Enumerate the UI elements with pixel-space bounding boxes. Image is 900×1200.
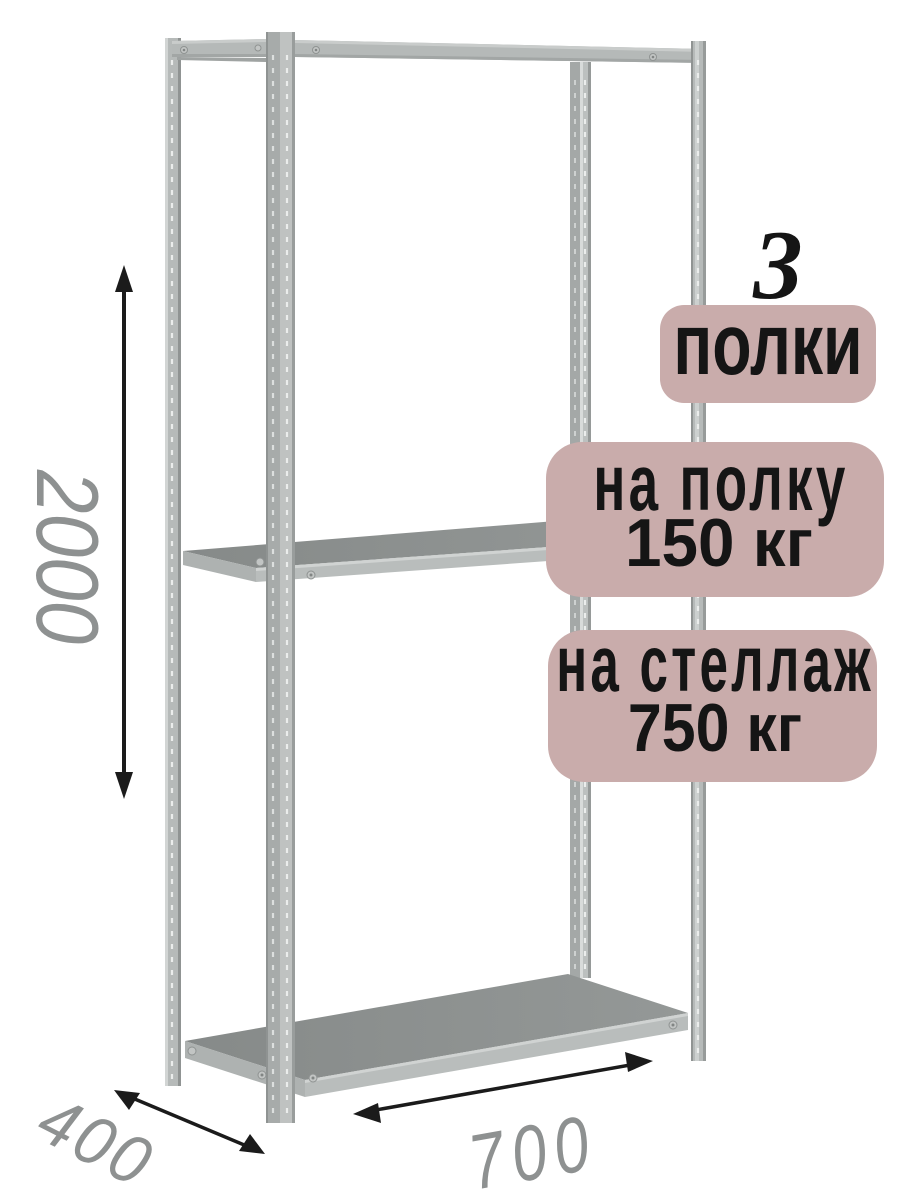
svg-text:150 кг: 150 кг [625, 506, 813, 581]
svg-text:750 кг: 750 кг [628, 690, 802, 766]
svg-text:2000: 2000 [18, 469, 116, 644]
svg-text:полки: полки [673, 297, 862, 394]
